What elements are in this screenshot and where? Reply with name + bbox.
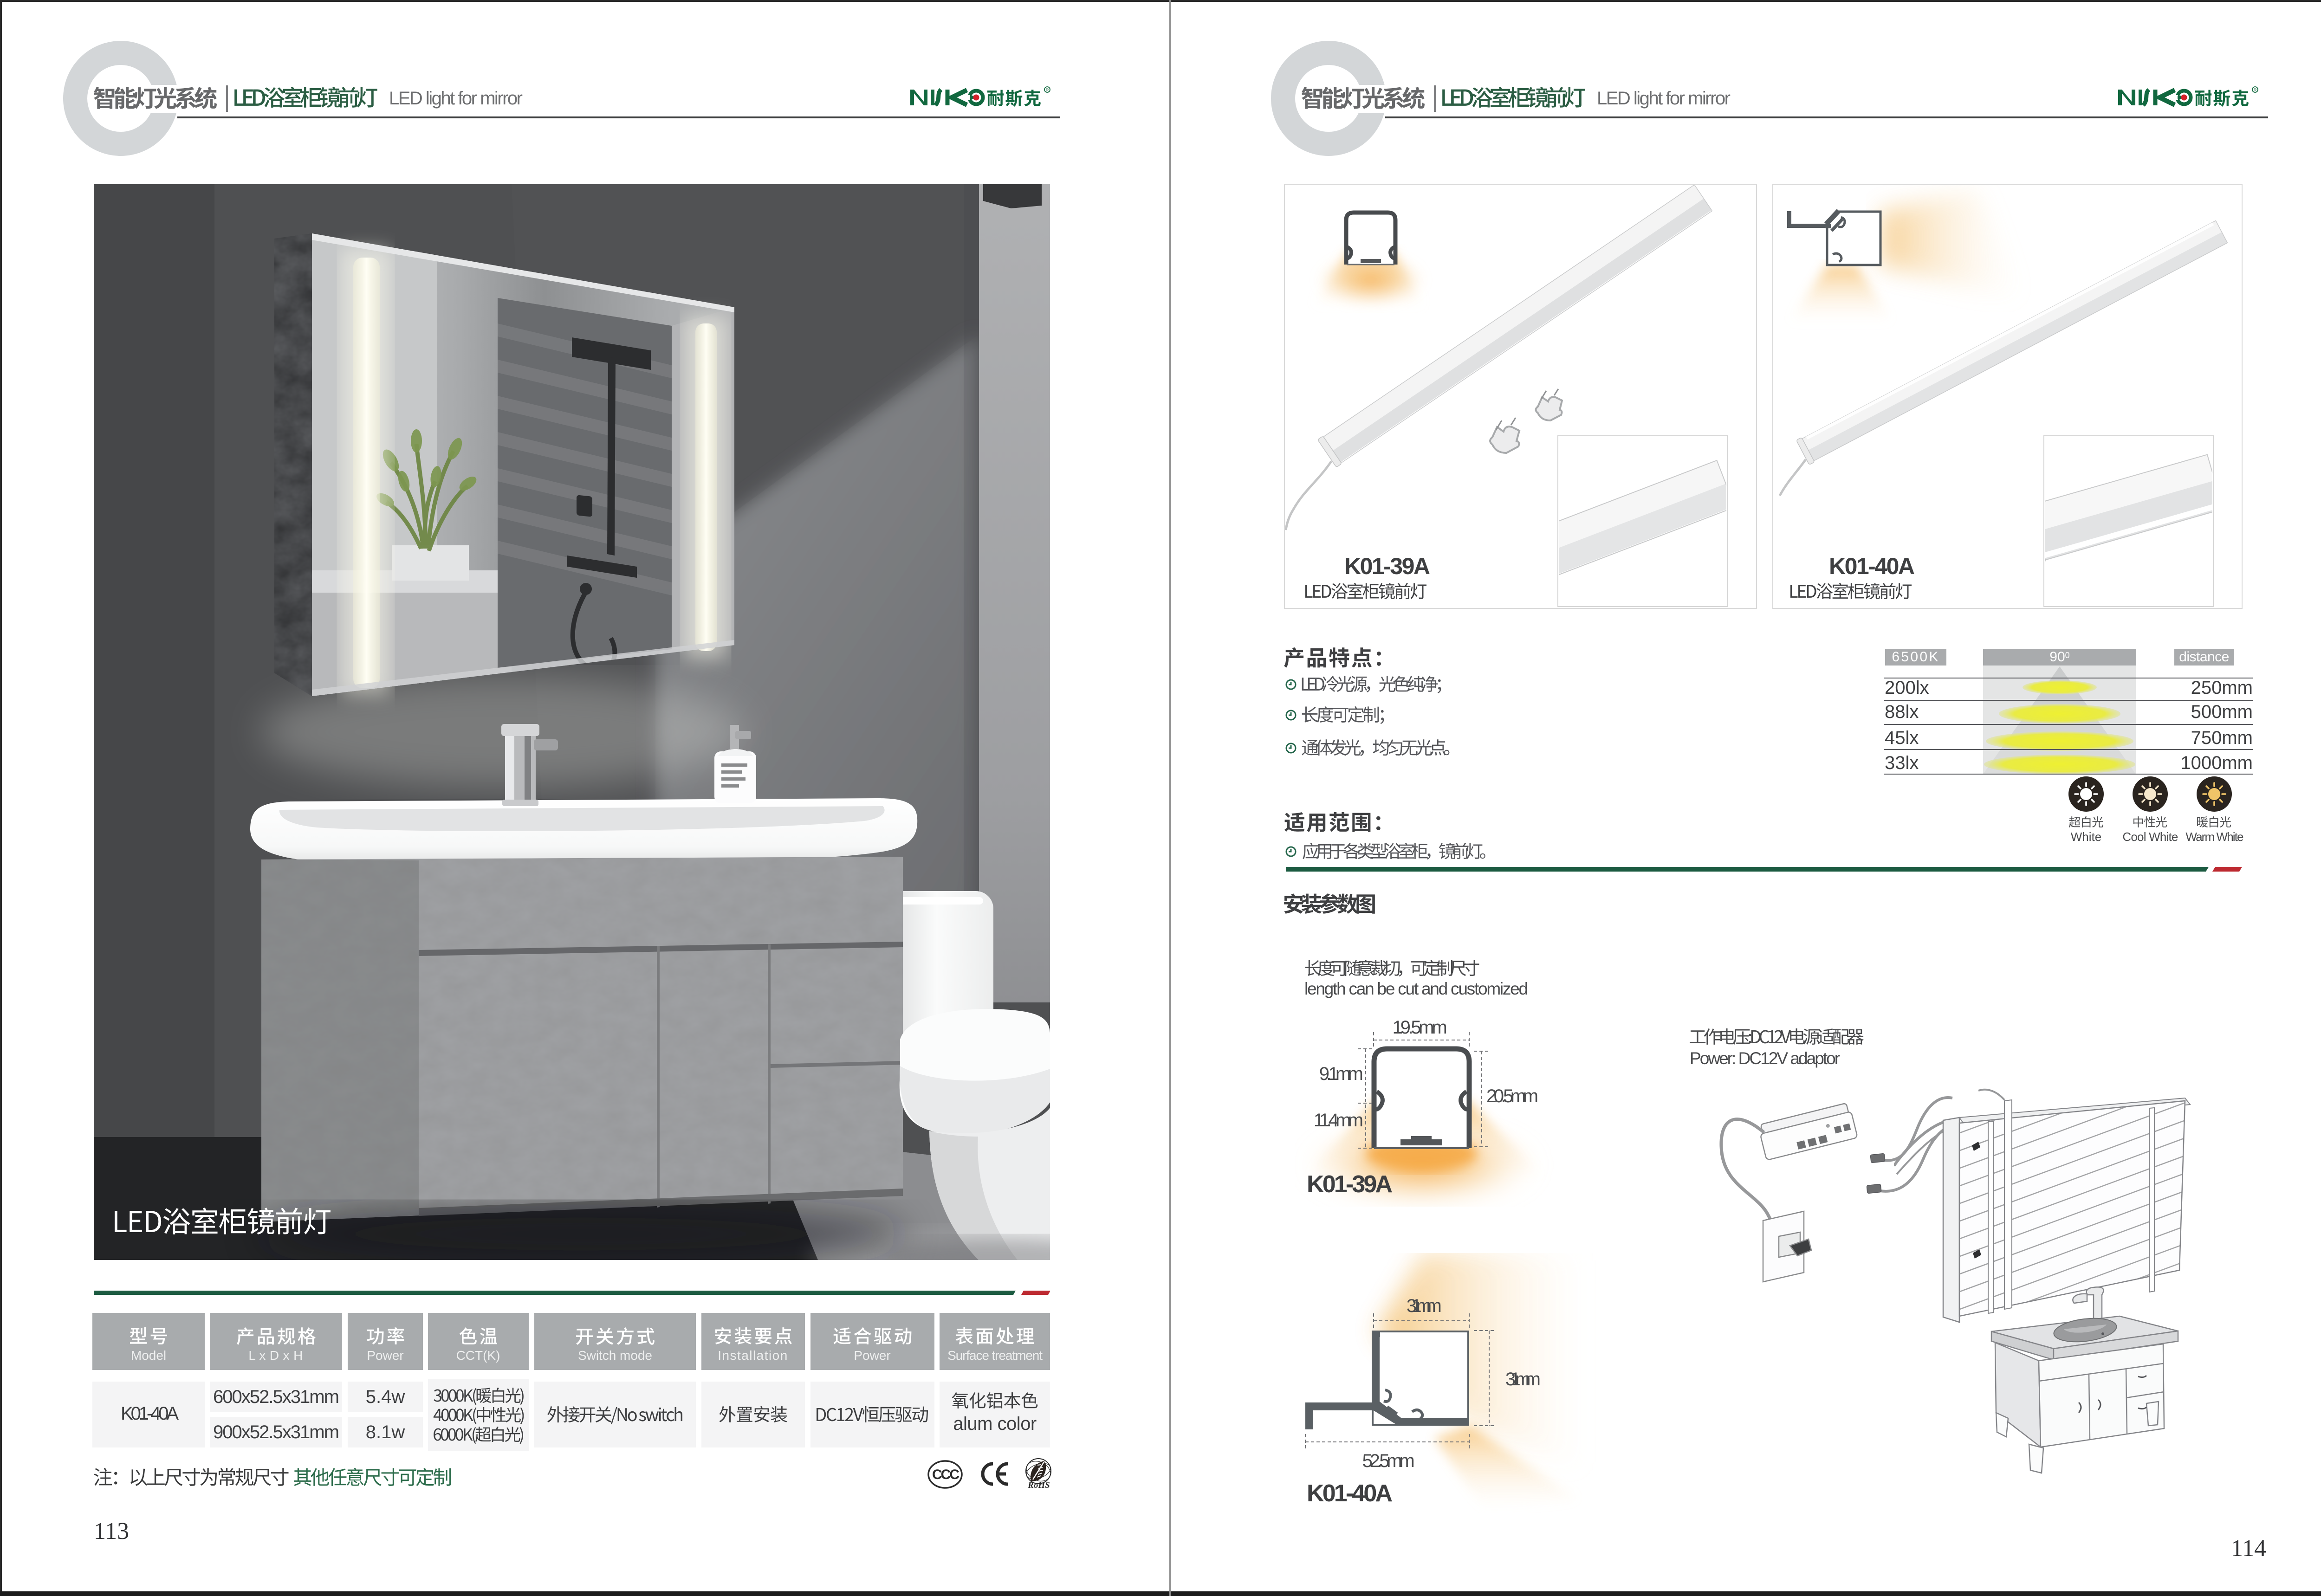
- svg-text:CCC: CCC: [932, 1467, 959, 1482]
- svg-text:R: R: [2254, 88, 2257, 92]
- svg-text:RoHS: RoHS: [1027, 1480, 1050, 1490]
- svg-text:R: R: [1046, 88, 1049, 92]
